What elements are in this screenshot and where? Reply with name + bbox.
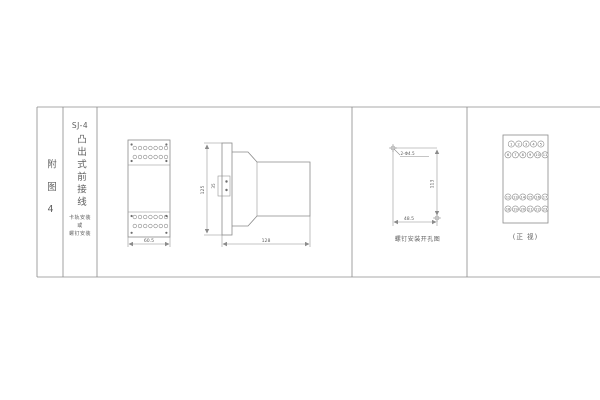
figure-title-column: SJ-4 凸出式前接线 卡轨安装 或 螺钉安装 [63, 107, 97, 277]
terminal-circle [154, 224, 158, 228]
terminal-number: 14 [521, 195, 526, 199]
front-dim-terminals [133, 146, 168, 228]
mounting-note-line: 螺钉安装 [69, 231, 91, 239]
terminal-circle [159, 155, 163, 159]
figure-sheet: 60.5 125 35 128 [0, 0, 600, 400]
terminal-circle [138, 224, 142, 228]
terminal-circle [149, 215, 153, 219]
terminal-number: 15 [528, 195, 533, 199]
terminal-circle [143, 155, 147, 159]
mounting-note: 卡轨安装 或 螺钉安装 [69, 215, 91, 238]
type-label: 凸出式前接线 [73, 134, 87, 209]
terminal-circle [138, 215, 142, 219]
terminal-circle [149, 155, 153, 159]
terminal-circle [138, 146, 142, 150]
terminal-number: 1 [510, 142, 512, 146]
front-dimensional-view: 60.5 [128, 140, 170, 247]
terminal-circle [143, 224, 147, 228]
mounting-note-line: 或 [77, 223, 83, 231]
terminal-circle [133, 224, 137, 228]
terminal-circle [133, 155, 137, 159]
side-view: 125 35 128 [200, 143, 310, 247]
terminal-circle [154, 146, 158, 150]
terminal-circle [143, 215, 147, 219]
drill-width-dimension: 48.5 [404, 216, 414, 222]
figure-index-label: 附图4 [43, 159, 57, 228]
terminal-number: 5 [540, 142, 542, 146]
holes-label: 2-Φ4.5 [401, 151, 415, 156]
terminal-circle [138, 155, 142, 159]
terminal-circle [164, 224, 168, 228]
clip-dimension: 35 [211, 183, 216, 189]
terminal-number: 2 [518, 142, 520, 146]
terminal-circle [154, 155, 158, 159]
terminal-number: 11 [543, 153, 548, 157]
terminal-circle [164, 146, 168, 150]
terminal-number: 21 [528, 207, 533, 211]
band-frame [37, 107, 600, 277]
terminal-circle [159, 224, 163, 228]
terminal-number: 12 [506, 195, 511, 199]
terminal-circle [133, 215, 137, 219]
mounting-note-line: 卡轨安装 [69, 215, 91, 223]
figure-index-column: 附图4 [37, 107, 63, 277]
terminal-number: 10 [535, 153, 540, 157]
terminal-circle [159, 215, 163, 219]
terminal-number: 19 [513, 207, 518, 211]
depth-dimension: 128 [262, 238, 271, 244]
terminal-number: 18 [506, 207, 511, 211]
terminal-circle [159, 146, 163, 150]
terminal-front-view: 1234567891011121314151617181920212223 (正… [503, 135, 548, 241]
drill-caption: 螺钉安装开孔图 [395, 235, 441, 243]
terminal-number: 17 [543, 195, 548, 199]
terminal-number: 20 [521, 207, 526, 211]
terminal-circle [133, 146, 137, 150]
terminal-number: 7 [514, 153, 516, 157]
width-dimension: 60.5 [144, 238, 154, 244]
height-dimension: 125 [200, 186, 206, 195]
terminal-circle [154, 215, 158, 219]
terminal-number: 23 [543, 207, 548, 211]
terminal-circle [143, 146, 147, 150]
drill-height-dimension: 113 [430, 180, 436, 189]
terminal-number: 3 [525, 142, 527, 146]
terminal-number: 22 [535, 207, 540, 211]
drill-diagram: 113 2-Φ4.5 48.5 螺钉安装开孔图 [389, 144, 441, 243]
front-view-caption: (正 视) [513, 232, 538, 241]
terminal-grid: 1234567891011121314151617181920212223 [505, 141, 548, 212]
model-label: SJ-4 [72, 121, 88, 130]
terminal-circle [149, 224, 153, 228]
terminal-circle [164, 155, 168, 159]
terminal-circle [149, 146, 153, 150]
terminal-number: 16 [535, 195, 540, 199]
terminal-number: 13 [513, 195, 518, 199]
